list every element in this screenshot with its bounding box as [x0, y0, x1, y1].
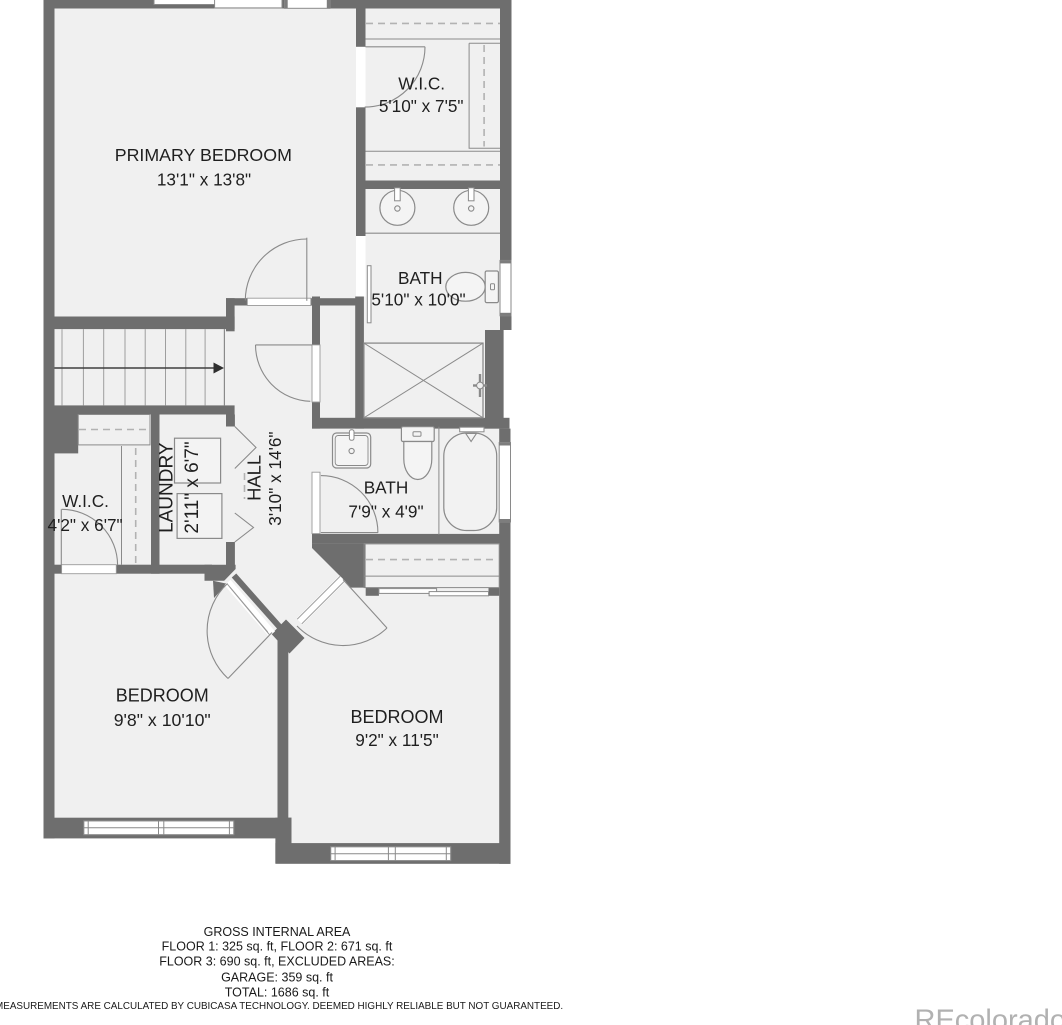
svg-text:BATH: BATH	[364, 478, 409, 498]
svg-text:HALL: HALL	[244, 455, 265, 501]
svg-text:REcolorado: REcolorado	[915, 1005, 1062, 1025]
svg-text:BATH: BATH	[398, 268, 443, 288]
svg-text:FLOOR 1: 325 sq. ft, FLOOR 2:: FLOOR 1: 325 sq. ft, FLOOR 2: 671 sq. ft	[162, 939, 393, 953]
svg-text:7'9" x 4'9": 7'9" x 4'9"	[348, 502, 423, 522]
svg-text:5'10" x 10'0": 5'10" x 10'0"	[371, 290, 465, 310]
svg-text:9'2" x 11'5": 9'2" x 11'5"	[355, 730, 438, 750]
svg-text:LAUNDRY: LAUNDRY	[157, 442, 178, 533]
svg-text:GROSS INTERNAL AREA: GROSS INTERNAL AREA	[204, 925, 351, 939]
svg-text:BEDROOM: BEDROOM	[116, 685, 209, 705]
svg-text:BEDROOM: BEDROOM	[350, 707, 443, 727]
svg-text:5'10" x 7'5": 5'10" x 7'5"	[379, 96, 464, 116]
svg-text:4'2" x 6'7": 4'2" x 6'7"	[48, 515, 123, 535]
svg-text:PRIMARY BEDROOM: PRIMARY BEDROOM	[115, 145, 292, 165]
svg-text:W.I.C.: W.I.C.	[398, 74, 445, 94]
svg-text:W.I.C.: W.I.C.	[62, 491, 109, 511]
svg-text:GARAGE: 359 sq. ft: GARAGE: 359 sq. ft	[221, 970, 333, 984]
svg-text:9'8" x 10'10": 9'8" x 10'10"	[114, 710, 211, 730]
svg-text:FLOOR 3: 690 sq. ft, EXCLUDED: FLOOR 3: 690 sq. ft, EXCLUDED AREAS:	[159, 955, 395, 969]
svg-text:MEASUREMENTS ARE CALCULATED BY: MEASUREMENTS ARE CALCULATED BY CUBICASA …	[0, 1001, 563, 1012]
svg-text:2'11" x 6'7": 2'11" x 6'7"	[182, 441, 203, 533]
svg-text:13'1" x 13'8": 13'1" x 13'8"	[157, 169, 251, 189]
svg-text:TOTAL: 1686 sq. ft: TOTAL: 1686 sq. ft	[225, 986, 330, 1000]
svg-text:3'10" x 14'6": 3'10" x 14'6"	[265, 431, 285, 525]
